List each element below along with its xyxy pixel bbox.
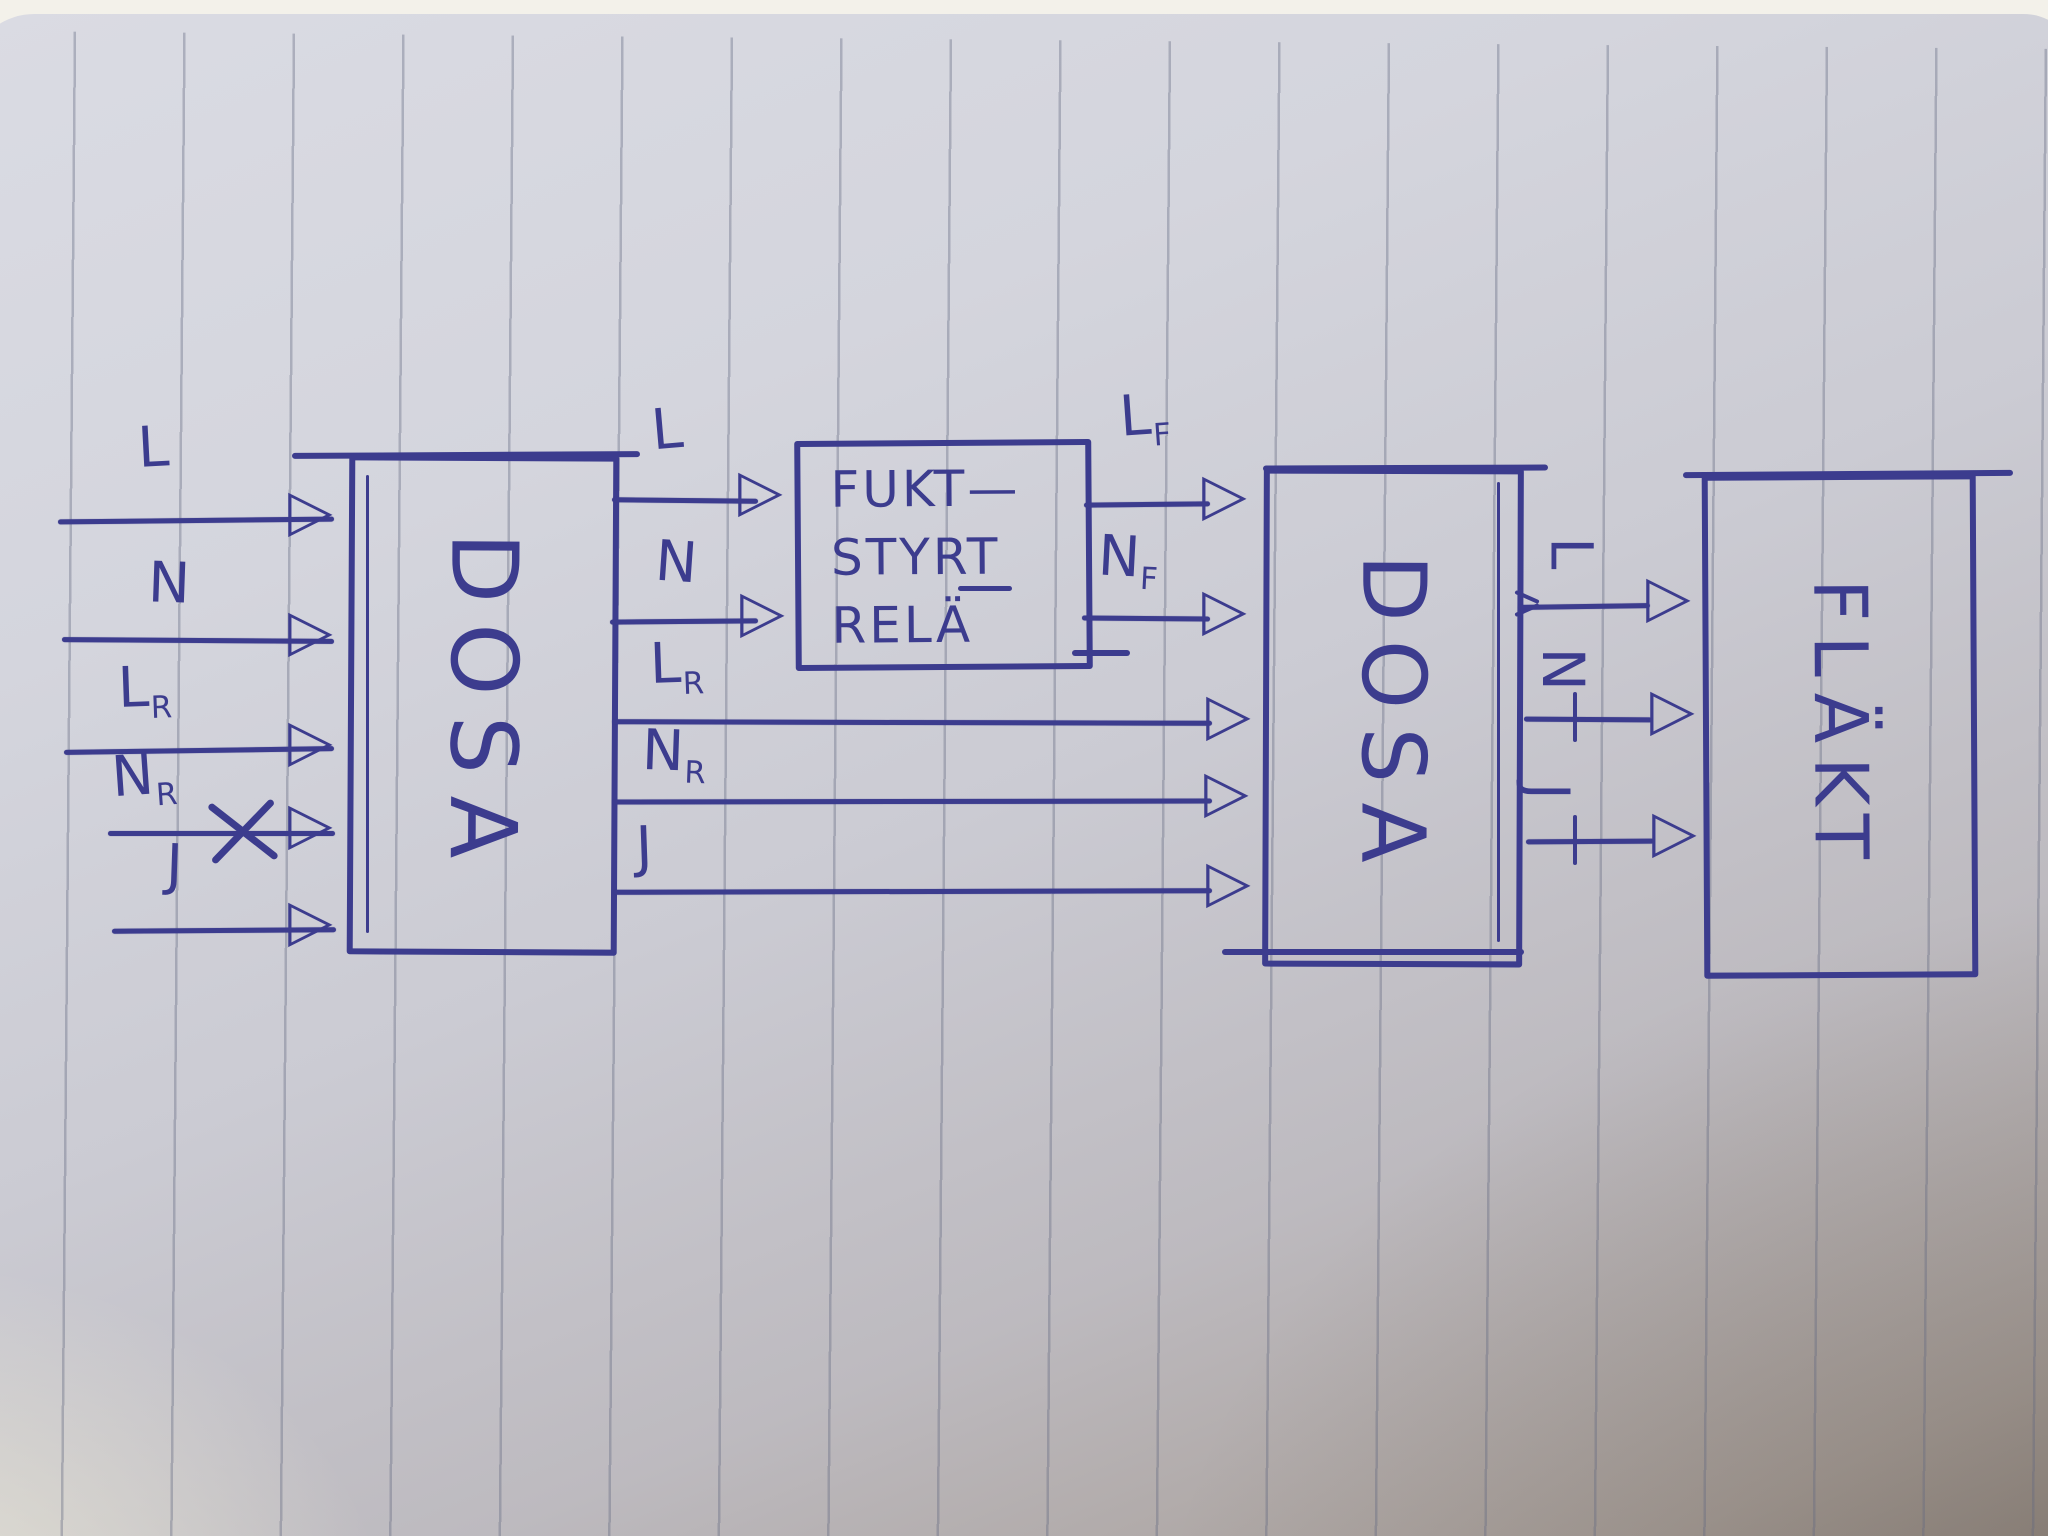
sketch-stroke bbox=[1263, 465, 1548, 472]
wire-label-j-pass: J bbox=[635, 820, 655, 885]
box-label: FLÄKT bbox=[1796, 579, 1884, 874]
wire-label-nr-input: NR bbox=[110, 746, 180, 814]
cross-out-icon bbox=[200, 788, 290, 878]
arrowhead-icon: ▷ bbox=[288, 711, 333, 769]
box-label-line: FUKT— bbox=[830, 454, 1020, 523]
arrowhead-icon: ▷ bbox=[1646, 567, 1691, 625]
sketch-stroke bbox=[1222, 949, 1524, 955]
wire-label-j-fan: J bbox=[1509, 783, 1577, 801]
box-label-line: STYRT bbox=[831, 523, 1001, 592]
wire-label-l-input: L bbox=[136, 419, 172, 485]
wire-label-j-input: J bbox=[165, 838, 185, 903]
arrowhead-icon: ▷ bbox=[1650, 680, 1695, 738]
arrowhead-icon: ▷ bbox=[288, 601, 333, 659]
arrowhead-icon: ▷ bbox=[738, 461, 783, 519]
arrowhead-icon: ▷ bbox=[1204, 762, 1249, 820]
arrowhead-icon: ▷ bbox=[1652, 802, 1697, 860]
arrowhead-icon: ▷ bbox=[288, 481, 333, 539]
wire-label-n-input: N bbox=[147, 555, 192, 620]
arrowhead-icon: ▷ bbox=[1202, 580, 1247, 638]
arrowhead-icon: ▷ bbox=[1206, 852, 1251, 910]
wire-label-l-fan: L bbox=[1533, 537, 1601, 570]
wire-label-l-relay: L bbox=[649, 401, 687, 468]
wire-nr-dosa1-dosa2 bbox=[612, 798, 1212, 804]
box-label: DOSA bbox=[1341, 554, 1445, 881]
underline-stroke bbox=[958, 586, 1012, 591]
box-label-line: RELÄ bbox=[831, 591, 973, 660]
arrowhead-icon: ▷ bbox=[288, 794, 333, 852]
box-label-multiline: FUKT— STYRT RELÄ bbox=[800, 450, 1086, 660]
box-junction-dosa-2: DOSA bbox=[1262, 468, 1524, 968]
wire-j-dosa2-flakt bbox=[1526, 839, 1654, 845]
box-junction-dosa-1: DOSA bbox=[347, 454, 620, 955]
wire-n-dosa2-flakt bbox=[1524, 717, 1652, 723]
sketch-stroke bbox=[1072, 650, 1130, 656]
wire-label-lr-input: LR bbox=[117, 659, 174, 725]
tick-stroke bbox=[1573, 815, 1577, 865]
box-fan: FLÄKT bbox=[1702, 473, 1979, 978]
wire-label-lr-pass: LR bbox=[649, 635, 706, 701]
arrowhead-icon: ▷ bbox=[740, 582, 785, 640]
box-humidity-relay: FUKT— STYRT RELÄ bbox=[794, 439, 1093, 671]
arrowhead-icon: ▷ bbox=[1206, 685, 1251, 743]
tick-stroke bbox=[1573, 692, 1577, 742]
arrowhead-icon: ▷ bbox=[288, 891, 333, 949]
sketch-stroke bbox=[366, 475, 369, 933]
wire-label-nf: NF bbox=[1096, 528, 1161, 595]
arrowhead-icon: ▷ bbox=[1202, 465, 1247, 523]
wire-label-n-relay: N bbox=[653, 534, 700, 601]
box-label: DOSA bbox=[429, 532, 538, 879]
wire-label-lf: LF bbox=[1118, 386, 1173, 453]
wire-label-nr-pass: NR bbox=[641, 723, 708, 789]
hand-drawn-wiring-diagram-photo: DOSA FUKT— STYRT RELÄ DOSA FLÄKT L ▷ N ▷… bbox=[0, 0, 2048, 1536]
wire-label-n-fan: N bbox=[1524, 648, 1592, 692]
sketch-stroke bbox=[1497, 482, 1500, 942]
